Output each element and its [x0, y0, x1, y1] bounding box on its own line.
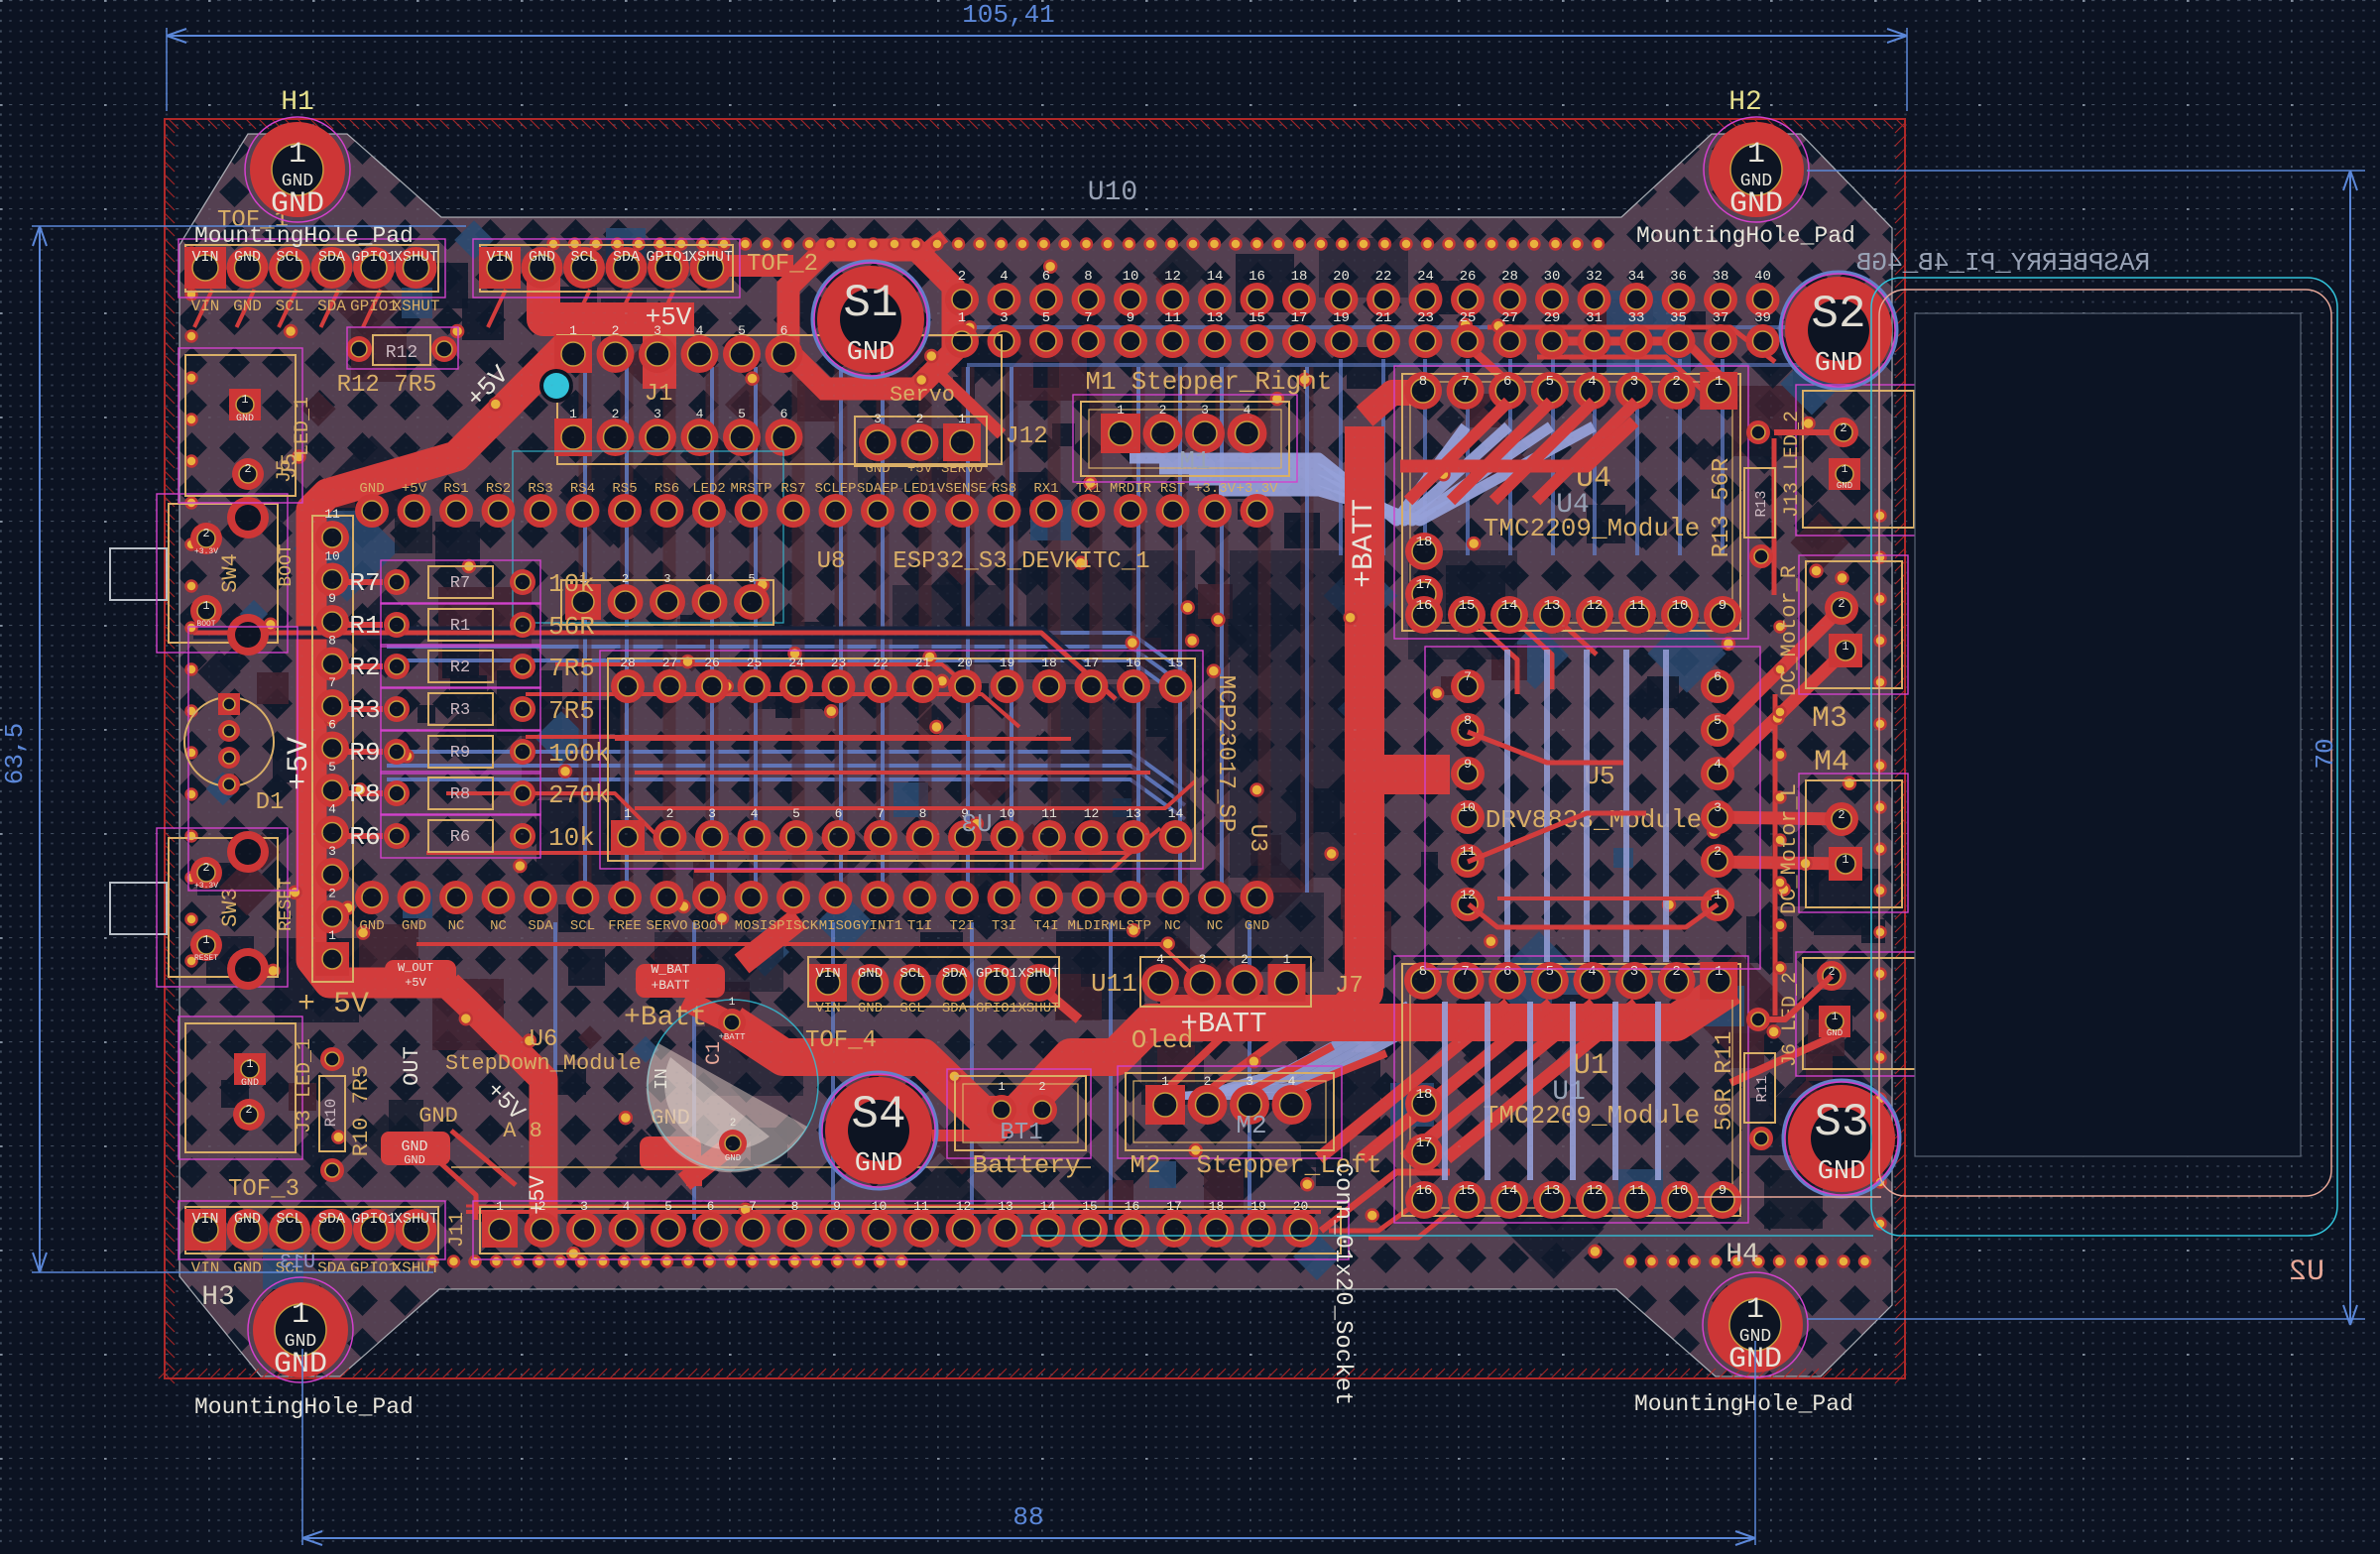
svg-text:U2: U2	[2289, 1255, 2324, 1289]
svg-text:GND: GND	[271, 187, 324, 221]
svg-text:H4: H4	[1725, 1240, 1759, 1270]
svg-text:GND: GND	[855, 1149, 903, 1179]
svg-text:+BATT: +BATT	[1348, 499, 1381, 588]
svg-text:+5V: +5V	[526, 1174, 550, 1214]
svg-text:MountingHole_Pad: MountingHole_Pad	[1634, 1391, 1853, 1417]
svg-text:GND: GND	[1729, 187, 1783, 221]
svg-text:GND: GND	[274, 1348, 327, 1381]
svg-text:GND: GND	[847, 338, 895, 368]
svg-text:88: 88	[1012, 1502, 1043, 1532]
svg-text:S4: S4	[851, 1089, 905, 1140]
svg-text:H3: H3	[201, 1282, 235, 1313]
svg-text:H1: H1	[281, 87, 314, 118]
svg-text:1: 1	[289, 138, 306, 172]
svg-text:GND: GND	[1815, 349, 1863, 379]
svg-text:1: 1	[1747, 138, 1765, 172]
svg-text:70: 70	[2311, 738, 2340, 769]
svg-text:MountingHole_Pad: MountingHole_Pad	[194, 1394, 414, 1420]
svg-text:105,41: 105,41	[962, 0, 1055, 30]
svg-text:U13: U13	[280, 1252, 315, 1274]
svg-text:MountingHole_Pad: MountingHole_Pad	[1636, 223, 1855, 249]
svg-text:1: 1	[292, 1298, 309, 1332]
svg-text:+BATT: +BATT	[1180, 1008, 1266, 1040]
svg-text:S2: S2	[1811, 289, 1865, 340]
svg-text:H2: H2	[1728, 87, 1762, 118]
svg-text:63,5: 63,5	[0, 723, 30, 784]
svg-text:MountingHole_Pad: MountingHole_Pad	[194, 223, 414, 249]
svg-text:S1: S1	[843, 278, 897, 329]
svg-text:+5V: +5V	[646, 302, 692, 332]
svg-text:Conn_01x20_Socket: Conn_01x20_Socket	[1329, 1163, 1356, 1406]
svg-text:GND: GND	[1818, 1157, 1866, 1187]
svg-text:RASPBERRY_PI_4B_4GB: RASPBERRY_PI_4B_4GB	[1856, 248, 2150, 278]
svg-text:+5V: +5V	[283, 737, 316, 790]
svg-text:1: 1	[1746, 1293, 1764, 1327]
svg-text:S3: S3	[1814, 1097, 1868, 1148]
